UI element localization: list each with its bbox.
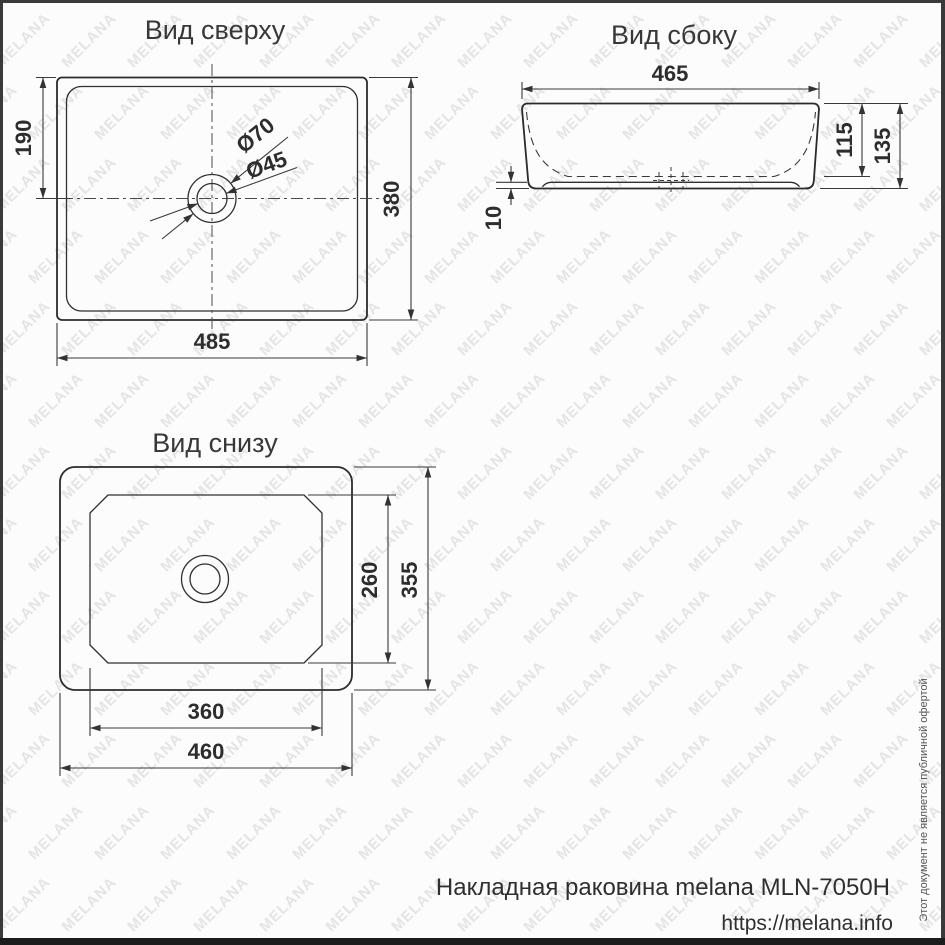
frame-border-right	[941, 0, 945, 945]
dim-group-360: 360	[90, 668, 322, 736]
dimension-arrowhead	[508, 189, 515, 200]
bottom-view-inner-base	[90, 495, 322, 663]
dimension-arrowhead	[522, 86, 533, 93]
dimension-arrowhead	[40, 188, 47, 199]
bottom-view: Вид снизу 260 355 360	[60, 428, 436, 776]
dimension-arrowhead	[342, 765, 353, 772]
sink-technical-drawing: Вид сверху Ø70 Ø45 190 380	[0, 0, 945, 945]
dimension-arrowhead	[385, 653, 392, 664]
dim-label-485: 485	[194, 329, 231, 354]
dim-label-460: 460	[188, 739, 225, 764]
bottom-view-drain-inner-circle	[190, 564, 220, 594]
dim-group-465: 465	[522, 61, 819, 99]
dim-label-115: 115	[832, 122, 857, 158]
top-view-title: Вид сверху	[145, 15, 286, 45]
dim-label-260: 260	[357, 562, 382, 599]
side-view: Вид сбоку 465 115 135	[481, 20, 908, 230]
dim-label-465: 465	[652, 61, 689, 86]
disclaimer-note: Этот документ не является публичной офер…	[918, 678, 930, 921]
dimension-arrowhead	[312, 725, 323, 732]
site-url: https://melana.info	[721, 912, 893, 935]
dim-group-10: 10	[481, 166, 529, 230]
dimension-arrowhead	[408, 310, 415, 321]
dim-group-485: 485	[57, 323, 367, 366]
dimension-arrowhead	[859, 104, 866, 115]
dim-label-360: 360	[188, 699, 225, 724]
technical-drawing-page: { "watermark": { "text": "MELANA" }, "vi…	[0, 0, 945, 945]
bottom-view-outline	[60, 467, 352, 690]
dimension-arrowhead	[408, 78, 415, 89]
dimension-arrowhead	[508, 172, 515, 183]
dimension-arrowhead	[40, 78, 47, 89]
frame-border-left	[0, 0, 3, 945]
bottom-view-drain-outer-circle	[182, 556, 229, 603]
frame-border-top	[0, 0, 945, 3]
dimension-arrowhead	[357, 355, 368, 362]
dimension-arrowhead	[231, 174, 241, 183]
dimension-arrowhead	[60, 765, 71, 772]
dimension-arrowhead	[809, 86, 820, 93]
dimension-arrowhead	[897, 178, 904, 189]
dimension-arrowhead	[859, 166, 866, 177]
dimension-arrowhead	[187, 204, 198, 211]
footer: Накладная раковина melana MLN-7050H http…	[436, 678, 930, 935]
dimension-arrowhead	[897, 104, 904, 115]
bottom-view-title: Вид снизу	[152, 428, 278, 458]
side-view-bowl-hidden-line	[527, 112, 816, 177]
dimension-arrowhead	[425, 467, 432, 478]
dimension-arrowhead	[226, 187, 237, 194]
dimension-arrowhead	[57, 355, 68, 362]
dim-label-355: 355	[397, 562, 422, 599]
dim-group-190: 190	[11, 78, 70, 199]
side-view-title: Вид сбоку	[611, 20, 737, 50]
dimension-arrowhead	[425, 680, 432, 691]
dim-label-135: 135	[870, 128, 895, 165]
dim-label-10: 10	[481, 206, 506, 230]
dimension-arrowhead	[183, 214, 193, 223]
product-name: Накладная раковина melana MLN-7050H	[436, 874, 890, 901]
footer-black-bar	[0, 938, 945, 945]
dimension-arrowhead	[90, 725, 101, 732]
dim-group-115-135: 115 135	[820, 104, 908, 189]
dim-label-190: 190	[11, 120, 36, 157]
dim-label-380: 380	[379, 181, 404, 218]
top-view: Вид сверху Ø70 Ø45 190 380	[11, 15, 418, 366]
dimension-arrowhead	[385, 495, 392, 506]
